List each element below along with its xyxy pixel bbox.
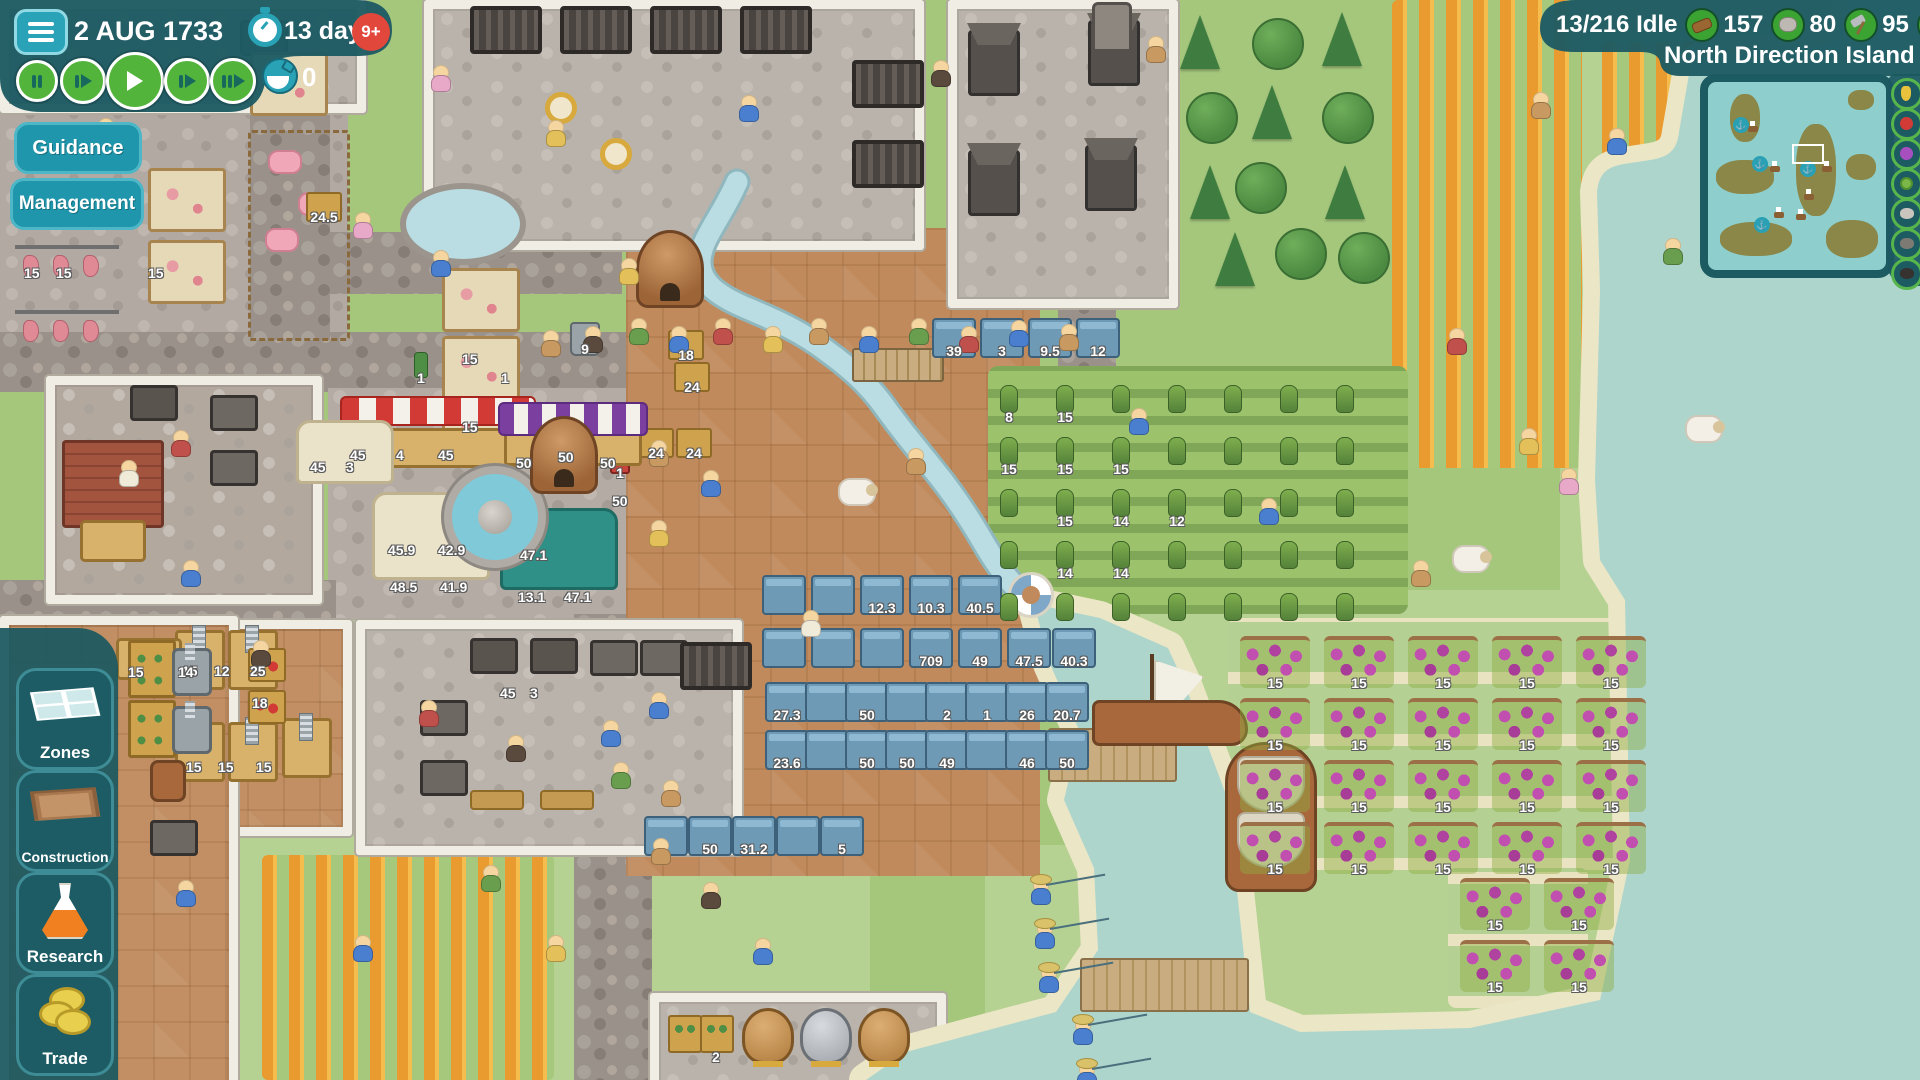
grapes-icon[interactable] [1891,138,1920,170]
minimap-island [1848,90,1874,110]
speed-3-button[interactable] [210,58,256,104]
pause-button[interactable] [16,60,58,102]
science-count: 0 [302,62,316,93]
floor-grid-icon [30,687,100,721]
apple-icon[interactable] [1891,108,1920,140]
coal-icon[interactable] [1891,258,1920,290]
stone-icon[interactable] [1891,198,1920,230]
idle-count[interactable]: 13/216 Idle [1556,11,1677,39]
minimap-ship [1822,166,1832,172]
minimap-ship [1804,194,1814,200]
sidebar-item-construction[interactable]: Construction [16,770,114,872]
notification-badge[interactable]: 9+ [352,13,390,51]
anchor-icon[interactable]: ⚓ [1752,156,1768,172]
cabbage-icon[interactable] [1891,168,1920,200]
tools-resource[interactable]: 95 [1844,8,1909,42]
play-button[interactable] [106,52,164,110]
hamburger-icon [28,22,54,26]
minimap-resource-strip [1888,74,1920,286]
guidance-button[interactable]: Guidance [14,122,142,174]
coins-icon [39,985,91,1035]
minimap[interactable]: ⚓⚓⚓⚓ [1700,74,1894,278]
speed-2-button[interactable] [164,58,210,104]
ore-icon[interactable] [1891,228,1920,260]
game-date: 2 AUG 1733 [74,16,223,47]
game-screen: 3939.51212.310.340.57094947.540.327.3502… [0,0,1920,1080]
minimap-viewport[interactable] [1792,144,1824,164]
hud-overlay: 2 AUG 1733 13 days 9+ 0 Guidance Managem… [0,0,1920,1080]
minimap-ship [1748,126,1758,132]
science-flask-icon [262,58,298,94]
minimap-ship [1770,166,1780,172]
speed-1-button[interactable] [60,58,106,104]
stopwatch-icon [248,13,282,47]
tools-icon [1844,8,1878,42]
corn-icon[interactable] [1891,78,1920,110]
sidebar-item-research[interactable]: Research [16,872,114,974]
sidebar-item-trade[interactable]: Trade [16,974,114,1076]
room-walls-icon [30,787,100,821]
flask-icon [40,883,90,939]
minimap-island [1846,154,1876,180]
stone-icon [1771,8,1805,42]
anchor-icon[interactable]: ⚓ [1754,217,1770,233]
management-button[interactable]: Management [10,178,144,230]
minimap-island [1826,220,1878,258]
top-right-bar: 13/216 Idle 157 80 95 55 [1556,8,1920,42]
sidebar-item-zones[interactable]: Zones [16,668,114,770]
minimap-ship [1774,212,1784,218]
anchor-icon[interactable]: ⚓ [1733,117,1749,133]
wood-log-icon [1685,8,1719,42]
island-name: North Direction Island [1664,42,1915,70]
wood-resource[interactable]: 157 [1685,8,1763,42]
menu-button[interactable] [14,9,68,55]
minimap-ship [1796,214,1806,220]
stone-resource[interactable]: 80 [1771,8,1836,42]
